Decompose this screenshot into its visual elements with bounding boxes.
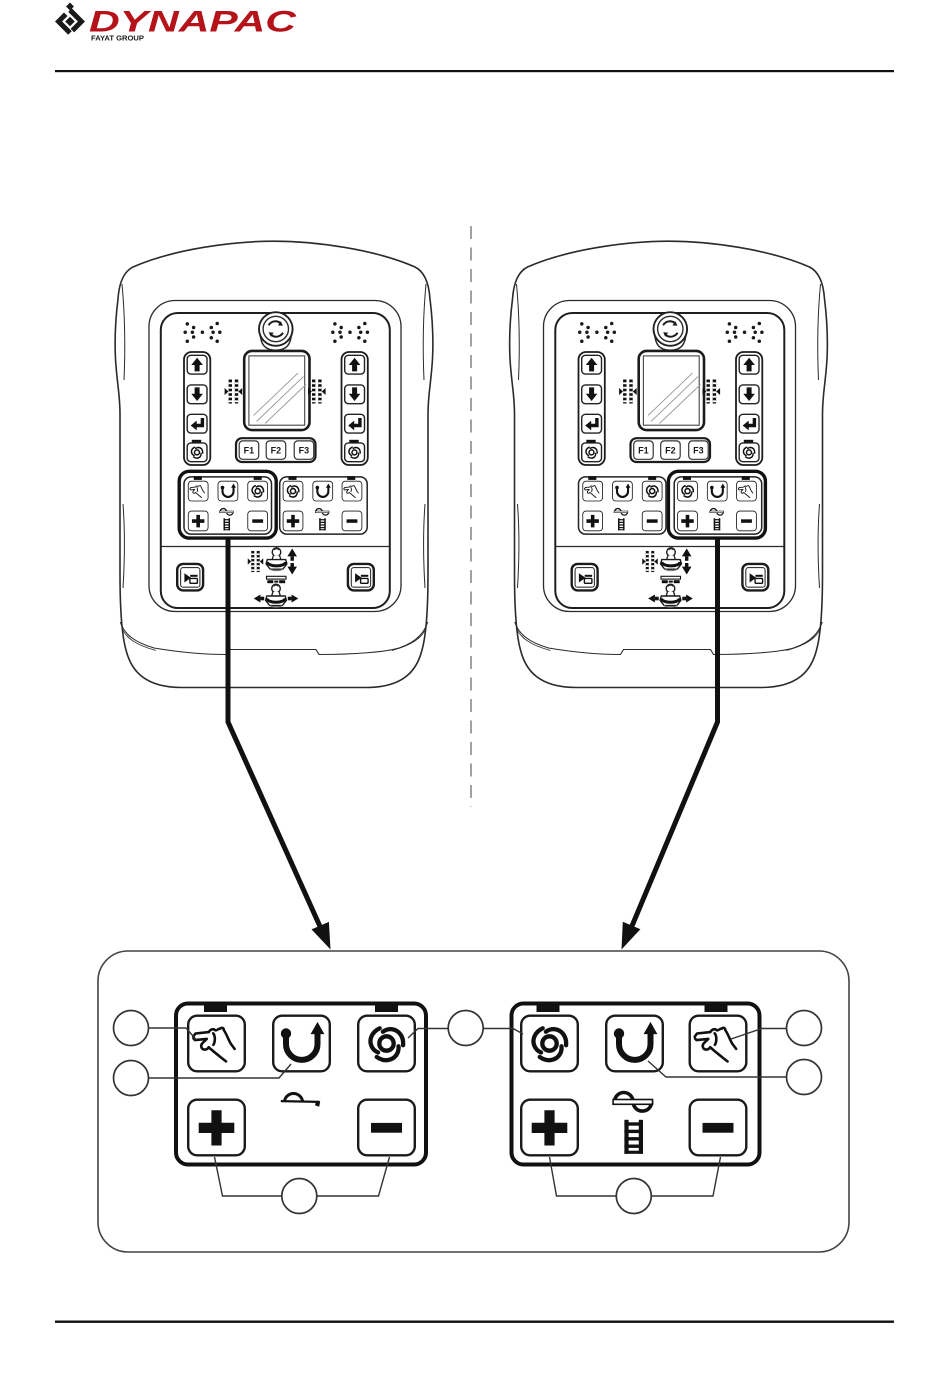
svg-text:FAYAT GROUP: FAYAT GROUP [91,33,144,42]
